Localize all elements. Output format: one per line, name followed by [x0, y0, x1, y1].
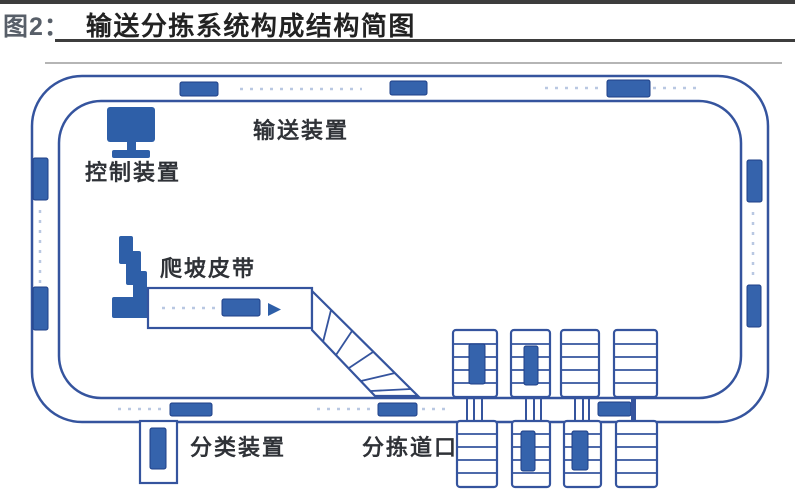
sorting-lanes-upper	[453, 330, 657, 397]
sorting-lane	[564, 421, 601, 487]
parcel	[180, 82, 218, 96]
sorting-lanes-lower	[457, 421, 657, 487]
classify-bay	[140, 421, 177, 483]
label-climb-belt: 爬坡皮带	[160, 256, 256, 281]
parcel	[572, 431, 588, 470]
conveyor-diagram: 控制装置 输送装置 爬坡皮带 分类装置 分拣道口	[0, 0, 799, 492]
sorting-lane	[614, 330, 657, 397]
parcel	[150, 428, 166, 469]
label-conveyor-device: 输送装置	[253, 118, 349, 143]
label-classify-device: 分类装置	[190, 435, 286, 460]
parcel	[524, 346, 538, 385]
parcel	[469, 344, 485, 384]
figure-page: 图2： 输送分拣系统构成结构简图	[0, 0, 799, 492]
parcel	[33, 158, 48, 200]
incline-ramp	[312, 291, 418, 396]
label-control-device: 控制装置	[85, 160, 181, 185]
sorting-lane	[616, 421, 657, 487]
sorting-lane	[457, 421, 497, 487]
label-sorting-gate: 分拣道口	[362, 435, 458, 460]
parcel	[170, 403, 212, 416]
sorting-lane	[511, 330, 550, 397]
parcel	[598, 402, 631, 416]
parcel	[222, 299, 260, 316]
parcel	[378, 403, 417, 416]
feed-belt	[148, 288, 312, 328]
parcel	[747, 285, 761, 327]
sorting-lane	[453, 330, 497, 397]
sorting-lane	[512, 421, 550, 487]
computer-monitor-icon	[107, 107, 155, 158]
parcel	[390, 81, 427, 95]
parcel	[33, 287, 48, 330]
parcel	[521, 431, 535, 471]
sorting-lane	[561, 330, 599, 397]
parcel	[607, 80, 650, 97]
parcel	[747, 160, 762, 202]
